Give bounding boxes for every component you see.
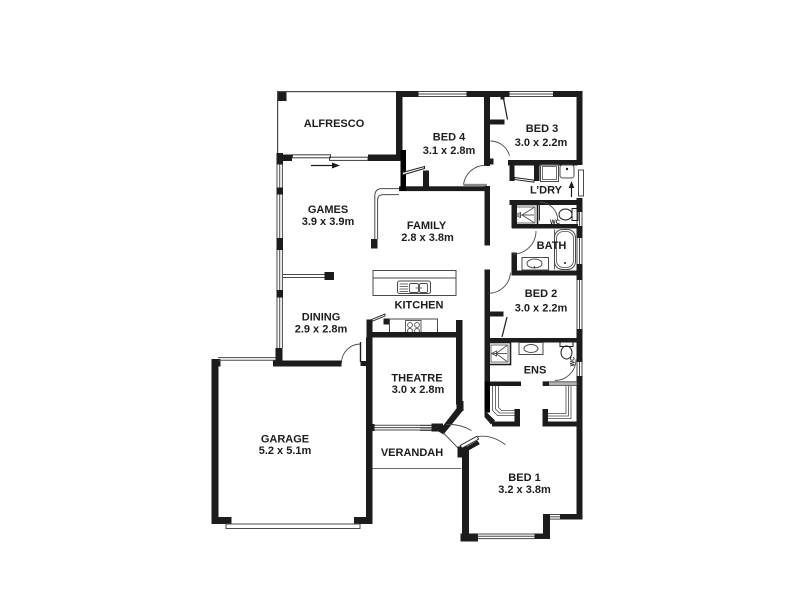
svg-text:3.0 x 2.2m: 3.0 x 2.2m: [515, 137, 568, 149]
svg-text:ALFRESCO: ALFRESCO: [304, 118, 365, 130]
svg-text:GARAGE: GARAGE: [261, 434, 309, 446]
svg-text:2.8 x 3.8m: 2.8 x 3.8m: [401, 232, 454, 244]
svg-text:BED 1: BED 1: [508, 472, 540, 484]
svg-text:3.0 x 2.8m: 3.0 x 2.8m: [392, 384, 445, 396]
svg-text:5.2 x 5.1m: 5.2 x 5.1m: [259, 445, 312, 457]
svg-text:3.2 x 3.8m: 3.2 x 3.8m: [498, 484, 551, 496]
svg-text:2.9 x 2.8m: 2.9 x 2.8m: [295, 324, 348, 336]
svg-text:3.0 x 2.2m: 3.0 x 2.2m: [515, 303, 568, 315]
svg-text:L’DRY: L’DRY: [530, 185, 563, 197]
svg-text:VERANDAH: VERANDAH: [381, 447, 443, 459]
svg-text:ENS: ENS: [524, 365, 547, 377]
svg-text:3.1 x 2.8m: 3.1 x 2.8m: [423, 145, 476, 157]
svg-text:GAMES: GAMES: [308, 204, 348, 216]
svg-text:3.9 x 3.9m: 3.9 x 3.9m: [302, 216, 355, 228]
svg-text:FAMILY: FAMILY: [407, 220, 447, 232]
svg-text:DINING: DINING: [302, 312, 341, 324]
svg-text:BED 3: BED 3: [526, 123, 558, 135]
svg-text:THEATRE: THEATRE: [391, 373, 442, 385]
svg-text:BATH: BATH: [537, 240, 567, 252]
svg-text:BED 4: BED 4: [433, 132, 466, 144]
svg-text:KITCHEN: KITCHEN: [395, 300, 444, 312]
svg-text:BED 2: BED 2: [525, 288, 557, 300]
